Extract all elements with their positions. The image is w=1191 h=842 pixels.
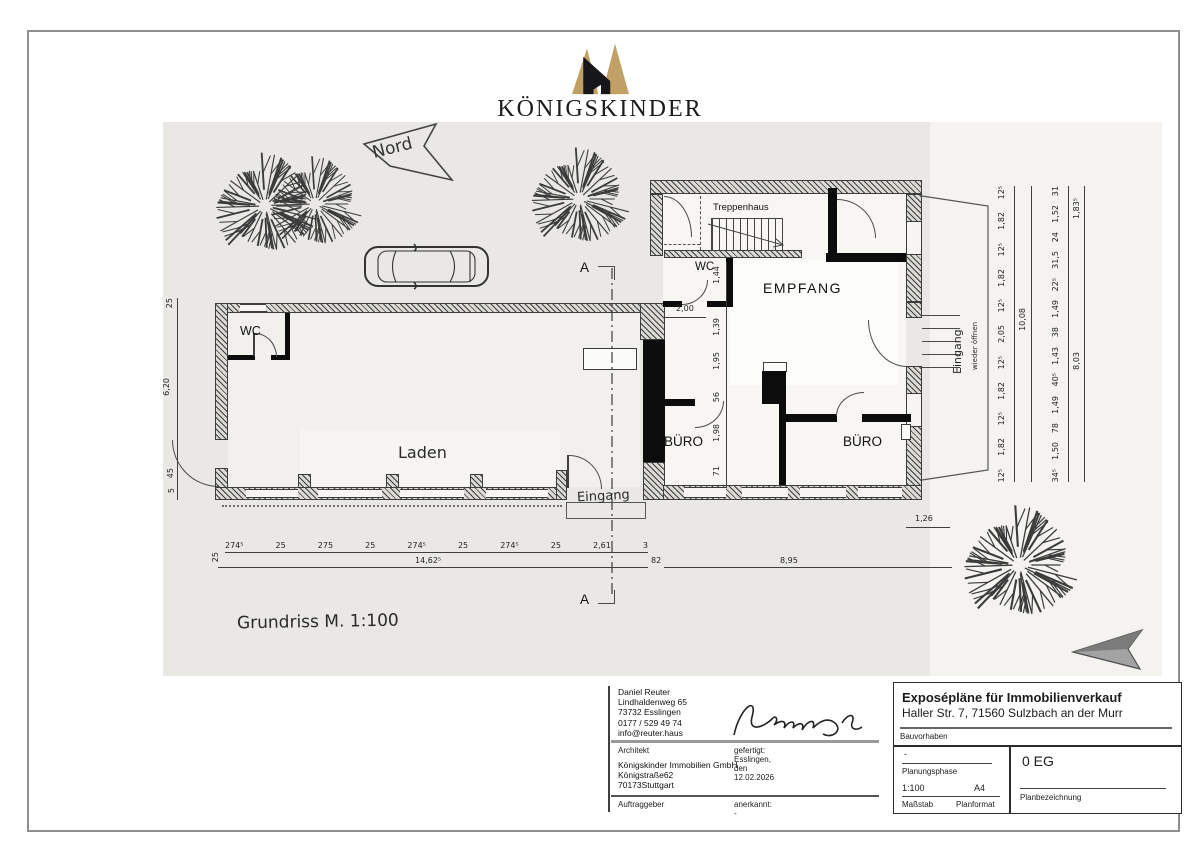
dim-label: 1,43 (1051, 347, 1060, 365)
dim-label: 24 (1051, 232, 1060, 242)
room-label-buero-right: BÜRO (843, 434, 882, 449)
dim-line (726, 262, 727, 488)
crown-icon (565, 40, 637, 96)
dim-label: 34⁵ (1051, 469, 1060, 482)
dim-label: 10,08 (1018, 308, 1027, 331)
titleblock-divider (608, 686, 610, 812)
plan-sheet: KÖNIGSKINDER IMMOBILIEN Nord (0, 0, 1191, 842)
dim-label: 25 (365, 541, 375, 550)
scale-label: Maßstab (902, 800, 933, 809)
dim-label: 274⁵ (500, 541, 518, 550)
dim-label: 274⁵ (225, 541, 243, 550)
titleblock-rule (900, 727, 1172, 729)
dim-label: 1,95 (712, 352, 721, 370)
dim-label: 1,83⁵ (1072, 198, 1081, 219)
dim-label: 1,98 (712, 424, 721, 442)
dim-label: 1,39 (712, 318, 721, 336)
section-marker-bottom: A (580, 592, 589, 607)
titleblock-rule (611, 795, 879, 797)
dim-label: 1,50 (1051, 442, 1060, 460)
phase-label: Planungsphase (902, 767, 957, 776)
dim-label: 1,49 (1051, 300, 1060, 318)
dim-label: 25 (165, 298, 174, 308)
dim-label: 82 (651, 556, 661, 565)
dim-line (1068, 186, 1069, 482)
dim-label: 2,05 (997, 325, 1006, 343)
dim-label: 1,49 (1051, 396, 1060, 414)
dim-label: 1,82 (997, 382, 1006, 400)
room-label-buero-left: BÜRO (664, 434, 703, 449)
section-marker-top: A (580, 260, 589, 275)
room-label-laden: Laden (398, 443, 447, 462)
dim-label: 56 (712, 392, 721, 402)
architect-role-label: Architekt (618, 746, 649, 755)
dim-label: 22⁵ (1051, 278, 1060, 291)
dim-label: 12⁵ (997, 299, 1006, 312)
gray-arrow (1070, 628, 1165, 672)
dim-label: 25 (211, 552, 220, 562)
dim-label: 45 (166, 468, 175, 478)
dim-label: 71 (712, 466, 721, 476)
format-label: Planformat (956, 800, 995, 809)
titleblock-rule (902, 763, 992, 764)
dim-label: 1,82 (997, 212, 1006, 230)
scale-value: 1:100 (902, 783, 925, 793)
label-wieder-oeffnen: wieder öffnen (971, 306, 979, 370)
dim-label: 8,95 (780, 556, 798, 565)
dim-label: 12⁵ (997, 243, 1006, 256)
section-flag (598, 266, 615, 280)
dim-line (218, 567, 648, 568)
plan-name-label: Planbezeichnung (1020, 793, 1081, 802)
project-title: Exposépläne für Immobilienverkauf (902, 690, 1122, 705)
dim-line (906, 527, 950, 528)
dim-label: 6,20 (162, 378, 171, 396)
dim-label: 31,5 (1051, 251, 1060, 269)
dim-label: 12⁵ (997, 412, 1006, 425)
plan-scale-label: Grundriss M. 1:100 (237, 611, 399, 634)
dim-label: 25 (276, 541, 286, 550)
room-label-wc-left: WC (240, 324, 261, 338)
dim-label: 2,00 (676, 304, 694, 313)
dim-label: 1,26 (915, 514, 933, 523)
dim-label: 78 (1051, 423, 1060, 433)
dim-label: 14,62⁵ (415, 556, 441, 565)
phase-value: - (904, 749, 907, 759)
client-address-line: 70173Stuttgart (618, 780, 818, 790)
section-flag (598, 590, 615, 604)
dim-line (1014, 186, 1015, 482)
project-label: Bauvorhaben (900, 732, 948, 741)
dim-line (177, 298, 178, 500)
titleblock-project-box: Exposépläne für Immobilienverkauf Haller… (893, 682, 1182, 814)
titleblock-divider (1009, 745, 1011, 813)
signature (724, 693, 874, 745)
dim-label: 1,82 (997, 269, 1006, 287)
titleblock-rule (902, 796, 1000, 797)
dim-label: 5 (167, 488, 176, 493)
dim-line (1084, 186, 1085, 482)
plan-name-value: 0 EG (1022, 753, 1054, 769)
approved-label: anerkannt: - (734, 800, 772, 818)
label-eingang-right: Eingang (951, 302, 964, 374)
dim-label: 274⁵ (407, 541, 425, 550)
titleblock-rule (1020, 788, 1166, 789)
dim-label: 1,82 (997, 438, 1006, 456)
room-label-treppenhaus: Treppenhaus (713, 202, 769, 213)
dim-line (664, 317, 706, 318)
dim-label: 1,52 (1051, 205, 1060, 223)
right-outer-dim-chain: 311,522431,522⁵1,49381,4340⁵1,49781,5034… (1046, 186, 1064, 482)
dim-label: 31 (1051, 186, 1060, 196)
dim-label: 12⁵ (997, 469, 1006, 482)
dim-line (664, 567, 952, 568)
client-address: Königskinder Immobilien GmbHKönigstraße6… (618, 760, 818, 791)
dim-label: 12⁵ (997, 186, 1006, 199)
bottom-dim-chain: 274⁵2527525274⁵25274⁵252,613 (225, 538, 648, 550)
dim-label: 3 (643, 541, 648, 550)
dim-label: 8,03 (1072, 352, 1081, 370)
label-eingang-laden: Eingang (577, 488, 630, 506)
dim-label: 25 (458, 541, 468, 550)
plan-overlay-lines (163, 122, 1162, 676)
dim-label: 275 (318, 541, 333, 550)
dim-label: 12⁵ (997, 356, 1006, 369)
client-address-line: Königstraße62 (618, 770, 818, 780)
dim-line (225, 552, 648, 553)
titleblock-rule (894, 745, 1181, 747)
room-label-empfang: EMPFANG (763, 280, 842, 296)
dim-label: 40⁵ (1051, 373, 1060, 386)
project-address: Haller Str. 7, 71560 Sulzbach an der Mur… (902, 706, 1123, 720)
dim-label: 1,44 (712, 266, 721, 284)
dim-label: 38 (1051, 327, 1060, 337)
titleblock-rule (611, 740, 879, 743)
dim-line (1031, 186, 1032, 482)
client-role-label: Auftraggeber (618, 800, 664, 809)
format-value: A4 (974, 783, 985, 793)
right-inner-dim-chain: 12⁵1,8212⁵1,8212⁵2,0512⁵1,8212⁵1,8212⁵ (992, 186, 1010, 482)
dim-label: 2,61 (593, 541, 611, 550)
client-address-line: Königskinder Immobilien GmbH (618, 760, 818, 770)
logo-brand: KÖNIGSKINDER (495, 96, 705, 123)
dim-label: 25 (551, 541, 561, 550)
